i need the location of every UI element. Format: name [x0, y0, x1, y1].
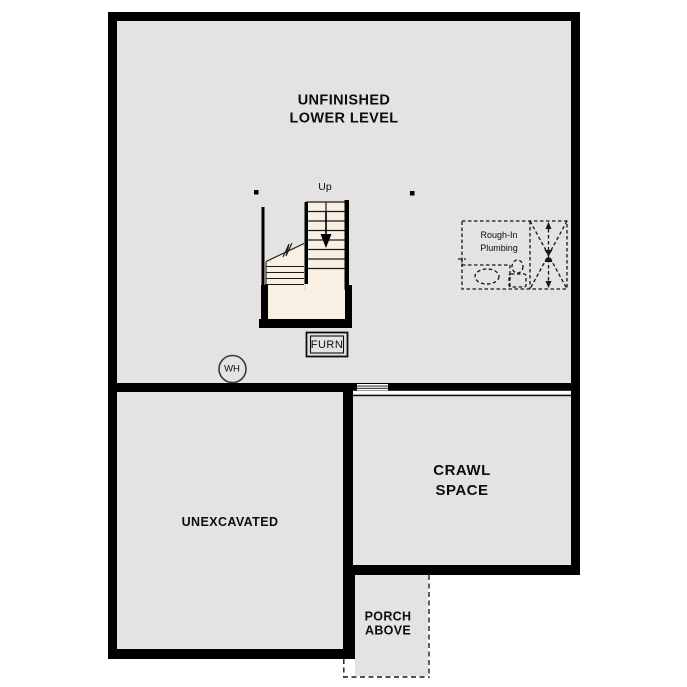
room-label-unexcavated: UNEXCAVATED	[182, 515, 279, 529]
stair-up-label: Up	[318, 181, 331, 193]
room-label-porch-above: PORCH ABOVE	[365, 611, 412, 638]
porch-line1: PORCH	[365, 611, 412, 625]
plumbing-line2: Plumbing	[480, 242, 518, 255]
window-symbol	[357, 384, 388, 390]
floor-plan: UNFINISHED LOWER LEVEL Up Rough-In Plumb…	[0, 0, 687, 687]
plumbing-line1: Rough-In	[480, 229, 518, 242]
crawl-line1: CRAWL	[433, 461, 491, 481]
stair-left-wall-thin	[262, 207, 265, 287]
room-label-crawl-space: CRAWL SPACE	[433, 461, 491, 501]
window-glass	[357, 384, 388, 390]
rough-in-plumbing-label: Rough-In Plumbing	[480, 229, 518, 255]
furnace-label: FURN	[311, 339, 344, 351]
title-line1: UNFINISHED	[289, 93, 398, 111]
crawl-space-top-gap	[353, 391, 571, 395]
water-heater-label: WH	[224, 364, 240, 375]
stair-right-rail	[345, 200, 350, 290]
room-label-unfinished-lower-level: UNFINISHED LOWER LEVEL	[289, 93, 398, 128]
stair-landing-fill2	[268, 290, 346, 320]
title-line2: LOWER LEVEL	[289, 110, 398, 128]
crawl-line2: SPACE	[433, 481, 491, 501]
stair-bottom-wall	[259, 319, 352, 328]
post-marker-dot	[410, 191, 415, 196]
post-marker-dot	[254, 190, 259, 195]
stair-center-rail	[305, 202, 309, 284]
porch-line2: ABOVE	[365, 624, 412, 638]
